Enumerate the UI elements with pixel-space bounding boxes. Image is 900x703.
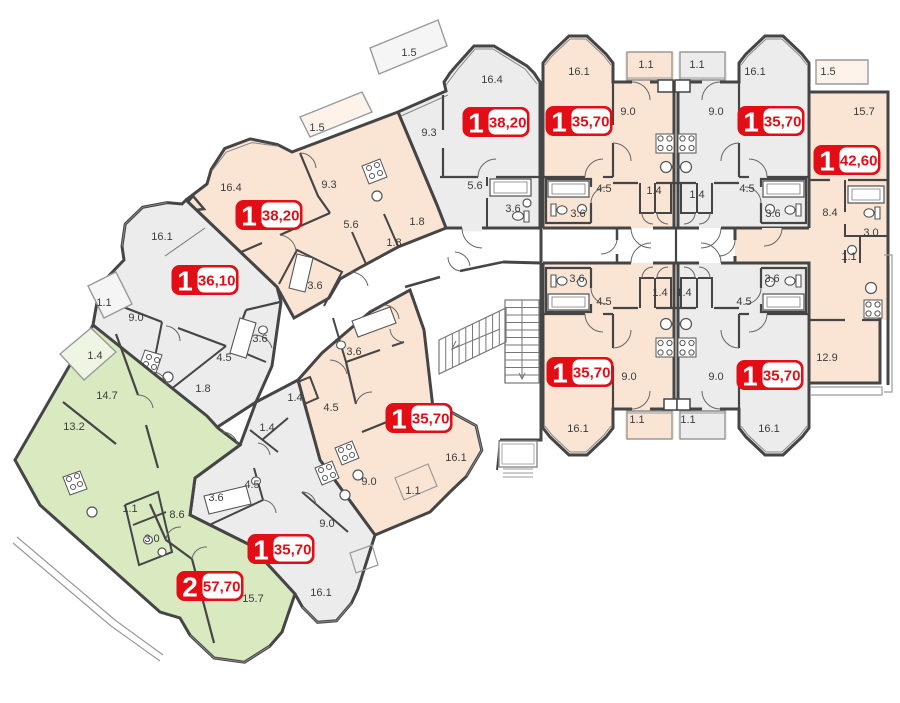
- svg-text:57,70: 57,70: [203, 579, 241, 596]
- svg-text:14.7: 14.7: [96, 390, 117, 402]
- svg-text:9.0: 9.0: [708, 371, 723, 383]
- svg-text:3.0: 3.0: [863, 227, 878, 239]
- svg-text:1: 1: [742, 361, 758, 392]
- svg-text:1: 1: [391, 404, 407, 435]
- svg-text:4.5: 4.5: [244, 479, 259, 491]
- svg-text:1.1: 1.1: [841, 251, 856, 263]
- svg-text:35,70: 35,70: [274, 542, 312, 559]
- svg-text:16.1: 16.1: [744, 66, 765, 78]
- svg-text:4.5: 4.5: [739, 183, 754, 195]
- svg-text:16.4: 16.4: [481, 74, 502, 86]
- svg-text:1.1: 1.1: [638, 59, 653, 71]
- svg-text:9.0: 9.0: [708, 106, 723, 118]
- svg-text:1.8: 1.8: [409, 216, 424, 228]
- svg-text:16.1: 16.1: [151, 231, 172, 243]
- svg-text:1.1: 1.1: [405, 485, 420, 497]
- svg-text:1.1: 1.1: [629, 414, 644, 426]
- svg-text:8.6: 8.6: [169, 509, 184, 521]
- svg-text:1.4: 1.4: [676, 287, 691, 299]
- svg-text:3.6: 3.6: [570, 208, 585, 220]
- svg-text:1.1: 1.1: [122, 503, 137, 515]
- svg-text:38,20: 38,20: [489, 115, 527, 132]
- svg-text:35,70: 35,70: [763, 368, 801, 385]
- svg-text:13.2: 13.2: [63, 421, 84, 433]
- svg-text:1: 1: [177, 266, 193, 297]
- svg-text:4.5: 4.5: [596, 183, 611, 195]
- svg-text:3.0: 3.0: [144, 533, 159, 545]
- svg-text:3.6: 3.6: [569, 273, 584, 285]
- svg-text:9.3: 9.3: [421, 127, 436, 139]
- svg-text:3.6: 3.6: [208, 492, 223, 504]
- svg-text:16.1: 16.1: [568, 66, 589, 78]
- svg-text:9.0: 9.0: [319, 518, 334, 530]
- svg-text:16.1: 16.1: [567, 423, 588, 435]
- svg-text:35,70: 35,70: [412, 411, 450, 428]
- svg-text:38,20: 38,20: [262, 208, 300, 225]
- svg-text:1.5: 1.5: [820, 66, 835, 78]
- svg-text:1: 1: [551, 107, 567, 138]
- svg-text:5.6: 5.6: [467, 180, 482, 192]
- svg-text:1.1: 1.1: [680, 414, 695, 426]
- svg-text:1.1: 1.1: [689, 59, 704, 71]
- svg-text:16.1: 16.1: [445, 452, 466, 464]
- svg-text:35,70: 35,70: [572, 114, 610, 131]
- svg-text:4.5: 4.5: [323, 402, 338, 414]
- svg-text:1.4: 1.4: [287, 392, 302, 404]
- svg-text:3.6: 3.6: [764, 273, 779, 285]
- svg-text:1: 1: [253, 535, 269, 566]
- svg-text:8.4: 8.4: [822, 207, 837, 219]
- svg-text:1: 1: [241, 201, 257, 232]
- svg-text:15.7: 15.7: [853, 106, 874, 118]
- svg-text:1.4: 1.4: [689, 189, 704, 201]
- svg-text:3.6: 3.6: [252, 333, 267, 345]
- svg-text:12.9: 12.9: [816, 352, 837, 364]
- svg-text:1.8: 1.8: [386, 237, 401, 249]
- svg-text:4.5: 4.5: [216, 352, 231, 364]
- svg-text:9.0: 9.0: [361, 476, 376, 488]
- svg-text:16.4: 16.4: [220, 182, 241, 194]
- svg-text:1: 1: [552, 358, 568, 389]
- svg-text:1.4: 1.4: [652, 287, 667, 299]
- svg-text:16.1: 16.1: [310, 587, 331, 599]
- svg-text:9.0: 9.0: [128, 312, 143, 324]
- svg-text:9.3: 9.3: [321, 179, 336, 191]
- svg-text:1.5: 1.5: [309, 122, 324, 134]
- svg-text:42,60: 42,60: [840, 153, 878, 170]
- svg-text:16.1: 16.1: [758, 423, 779, 435]
- svg-text:4.5: 4.5: [596, 296, 611, 308]
- svg-text:3.6: 3.6: [505, 203, 520, 215]
- svg-text:1.1: 1.1: [96, 297, 111, 309]
- svg-text:36,10: 36,10: [198, 273, 236, 290]
- svg-text:2: 2: [182, 572, 198, 603]
- svg-text:9.0: 9.0: [621, 371, 636, 383]
- svg-text:9.0: 9.0: [620, 106, 635, 118]
- svg-text:1: 1: [743, 107, 759, 138]
- svg-text:5.6: 5.6: [343, 219, 358, 231]
- svg-text:15.7: 15.7: [242, 593, 263, 605]
- svg-text:35,70: 35,70: [573, 365, 611, 382]
- svg-text:3.6: 3.6: [307, 280, 322, 292]
- svg-text:1.8: 1.8: [195, 383, 210, 395]
- svg-text:4.5: 4.5: [736, 296, 751, 308]
- svg-text:35,70: 35,70: [764, 114, 802, 131]
- svg-text:3.6: 3.6: [346, 346, 361, 358]
- svg-text:1.5: 1.5: [401, 47, 416, 59]
- svg-text:1.4: 1.4: [259, 422, 274, 434]
- svg-text:1.4: 1.4: [87, 350, 102, 362]
- svg-text:1: 1: [819, 146, 835, 177]
- svg-text:3.6: 3.6: [765, 208, 780, 220]
- svg-text:1.4: 1.4: [646, 185, 661, 197]
- svg-text:1: 1: [468, 108, 484, 139]
